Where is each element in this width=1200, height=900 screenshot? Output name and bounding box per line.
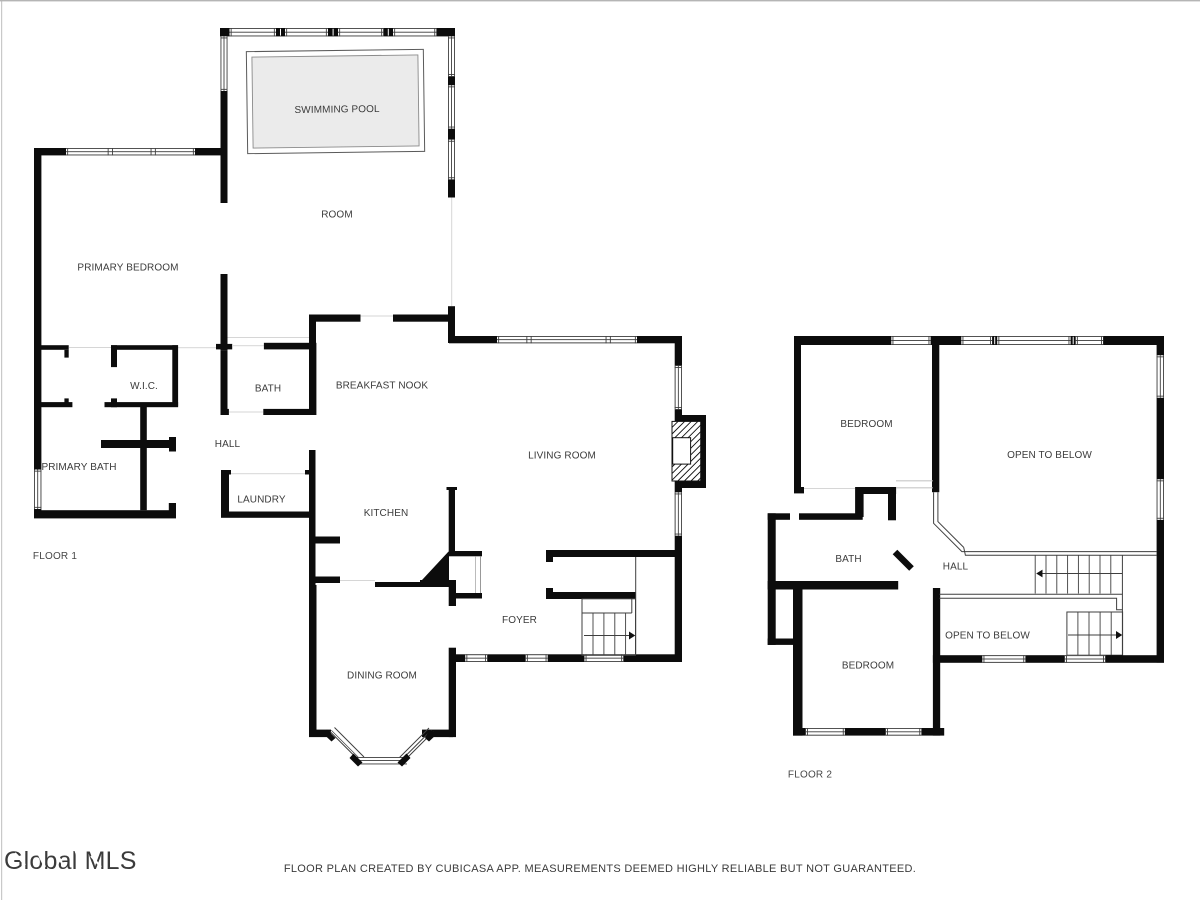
- svg-text:BEDROOM: BEDROOM: [840, 419, 892, 430]
- svg-text:SWIMMING POOL: SWIMMING POOL: [294, 104, 380, 116]
- svg-text:PRIMARY BEDROOM: PRIMARY BEDROOM: [77, 263, 178, 274]
- svg-text:OPEN TO BELOW: OPEN TO BELOW: [945, 631, 1030, 642]
- svg-text:BEDROOM: BEDROOM: [842, 661, 894, 672]
- svg-text:OPEN TO BELOW: OPEN TO BELOW: [1007, 450, 1092, 461]
- svg-text:FLOOR 1: FLOOR 1: [33, 551, 77, 562]
- svg-text:ROOM: ROOM: [321, 210, 353, 221]
- svg-text:BATH: BATH: [255, 384, 281, 395]
- svg-text:DINING ROOM: DINING ROOM: [347, 671, 417, 682]
- svg-text:LAUNDRY: LAUNDRY: [237, 495, 286, 506]
- svg-text:W.I.C.: W.I.C.: [130, 381, 158, 392]
- svg-text:HALL: HALL: [943, 562, 969, 573]
- svg-text:BREAKFAST NOOK: BREAKFAST NOOK: [336, 381, 429, 392]
- svg-text:FOYER: FOYER: [502, 615, 537, 626]
- svg-text:FLOOR PLAN CREATED BY CUBICASA: FLOOR PLAN CREATED BY CUBICASA APP. MEAS…: [284, 863, 916, 875]
- svg-text:PRIMARY BATH: PRIMARY BATH: [41, 462, 116, 473]
- svg-text:KITCHEN: KITCHEN: [364, 508, 409, 519]
- svg-text:FLOOR 2: FLOOR 2: [788, 770, 832, 781]
- svg-text:BATH: BATH: [835, 554, 861, 565]
- svg-text:LIVING ROOM: LIVING ROOM: [528, 451, 596, 462]
- svg-text:HALL: HALL: [215, 439, 241, 450]
